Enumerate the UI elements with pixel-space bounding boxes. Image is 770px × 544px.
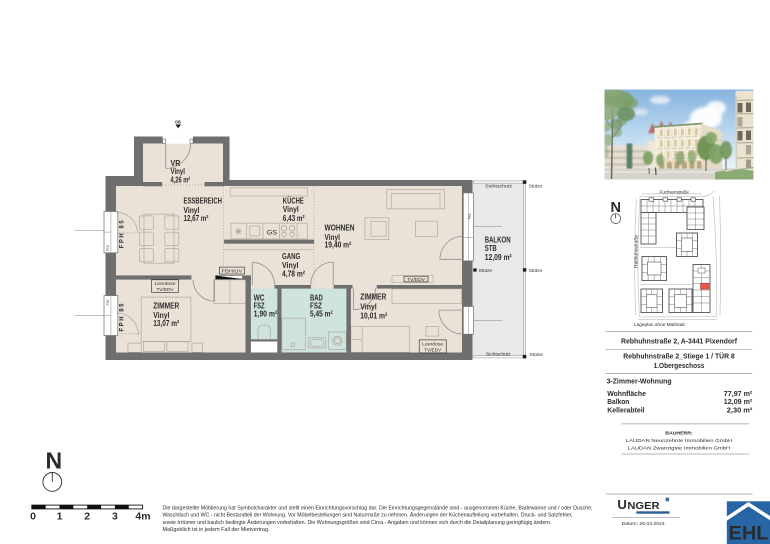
svg-text:Kellerabteil: Kellerabteil xyxy=(607,407,644,414)
svg-text:FPH 85: FPH 85 xyxy=(120,303,126,332)
svg-text:4,78 m²: 4,78 m² xyxy=(282,270,305,279)
svg-text:Balkon: Balkon xyxy=(607,399,629,406)
svg-text:0: 0 xyxy=(30,511,36,523)
svg-text:2: 2 xyxy=(84,511,90,523)
svg-text:U: U xyxy=(617,498,627,512)
svg-text:LAUDAN Zwanzigste Immobilien G: LAUDAN Zwanzigste Immobilien GmbH xyxy=(628,445,731,451)
svg-text:Waschtisch und WC - nicht Best: Waschtisch und WC - nicht Bestandteil de… xyxy=(163,512,573,519)
svg-text:19,40 m²: 19,40 m² xyxy=(325,241,352,250)
svg-text:12,09 m²: 12,09 m² xyxy=(724,399,753,406)
svg-text:4m: 4m xyxy=(135,511,150,523)
svg-text:Wohnfläche: Wohnfläche xyxy=(607,391,646,398)
svg-text:Lageplan ohne Maßstab: Lageplan ohne Maßstab xyxy=(634,322,685,327)
svg-text:Maßgeblich ist in jedem Fall d: Maßgeblich ist in jedem Fall der Mietver… xyxy=(163,527,270,533)
svg-text:12,09 m²: 12,09 m² xyxy=(485,253,512,262)
svg-text:Rebhuhnstraße 2, A-3441 Pixend: Rebhuhnstraße 2, A-3441 Pixendorf xyxy=(621,338,738,345)
svg-text:Rebhuhnstraße 2_Stiege 1 / TÜR: Rebhuhnstraße 2_Stiege 1 / TÜR 8 xyxy=(623,352,735,361)
svg-text:77,97 m²: 77,97 m² xyxy=(724,391,753,398)
svg-text:Vinyl: Vinyl xyxy=(282,261,299,270)
svg-text:GANG: GANG xyxy=(282,252,300,261)
svg-text:TV/EDV: TV/EDV xyxy=(407,277,425,282)
svg-text:4,26 m²: 4,26 m² xyxy=(171,175,191,184)
svg-text:5,45 m²: 5,45 m² xyxy=(310,310,333,319)
svg-text:sowie Irrtümer und baulich bed: sowie Irrtümer und baulich bedingte Ände… xyxy=(163,519,552,526)
svg-text:1.Obergeschoss: 1.Obergeschoss xyxy=(654,363,705,370)
svg-text:Datum: 26.04.2024: Datum: 26.04.2024 xyxy=(622,521,665,527)
svg-text:Vinyl: Vinyl xyxy=(283,205,299,214)
svg-text:TV/EDV: TV/EDV xyxy=(157,287,174,292)
svg-text:6,43 m²: 6,43 m² xyxy=(283,214,305,223)
svg-text:FBH/UV: FBH/UV xyxy=(222,269,244,274)
svg-text:Stütze: Stütze xyxy=(529,268,543,273)
svg-text:Leerdose: Leerdose xyxy=(422,341,444,346)
svg-text:LAUDAN Neunzehnte Immobilien G: LAUDAN Neunzehnte Immobilien GmbH xyxy=(626,438,733,444)
svg-text:ZIMMER: ZIMMER xyxy=(153,302,179,311)
svg-text:Rebhuhnstraße: Rebhuhnstraße xyxy=(633,234,638,268)
svg-text:12,67 m²: 12,67 m² xyxy=(184,214,209,223)
svg-text:1: 1 xyxy=(57,511,63,523)
svg-text:Leerdose: Leerdose xyxy=(155,281,177,286)
svg-text:KÜCHE: KÜCHE xyxy=(283,196,305,205)
svg-text:Stütze: Stütze xyxy=(479,268,493,273)
svg-text:Sichtschutz: Sichtschutz xyxy=(485,183,513,188)
svg-text:NGER: NGER xyxy=(627,501,659,512)
svg-text:Fuchsenstraße: Fuchsenstraße xyxy=(660,189,690,194)
svg-text:GS: GS xyxy=(267,229,278,236)
svg-text:08: 08 xyxy=(175,119,181,125)
svg-text:Stütze: Stütze xyxy=(530,352,544,357)
svg-text:1,90 m²: 1,90 m² xyxy=(254,310,278,319)
svg-text:2,30 m²: 2,30 m² xyxy=(727,407,753,414)
svg-text:FPH 85: FPH 85 xyxy=(120,220,126,249)
svg-text:Sichtschutz: Sichtschutz xyxy=(486,351,511,356)
svg-text:WOHNEN: WOHNEN xyxy=(325,224,355,233)
svg-text:STB: STB xyxy=(485,244,497,253)
svg-text:FIX: FIX xyxy=(106,244,110,251)
svg-text:Stütze: Stütze xyxy=(529,183,543,188)
svg-text:BAUHERR:: BAUHERR: xyxy=(665,430,693,436)
svg-text:Vinyl: Vinyl xyxy=(360,303,376,312)
svg-text:3: 3 xyxy=(112,511,118,523)
svg-text:FIX: FIX xyxy=(106,299,110,306)
svg-text:ESSBEREICH: ESSBEREICH xyxy=(184,196,223,205)
svg-text:FIX: FIX xyxy=(468,213,472,220)
svg-text:N: N xyxy=(46,448,63,474)
svg-text:TV/EDV: TV/EDV xyxy=(424,347,441,352)
svg-text:ZIMMER: ZIMMER xyxy=(360,293,386,302)
svg-text:10,01 m²: 10,01 m² xyxy=(360,311,387,320)
svg-text:Die dargestellte Möblierung ha: Die dargestellte Möblierung hat Symbolch… xyxy=(163,506,593,512)
svg-text:EHL: EHL xyxy=(729,522,769,544)
svg-text:3-Zimmer-Wohnung: 3-Zimmer-Wohnung xyxy=(607,379,672,386)
svg-text:13,07 m²: 13,07 m² xyxy=(153,319,179,328)
